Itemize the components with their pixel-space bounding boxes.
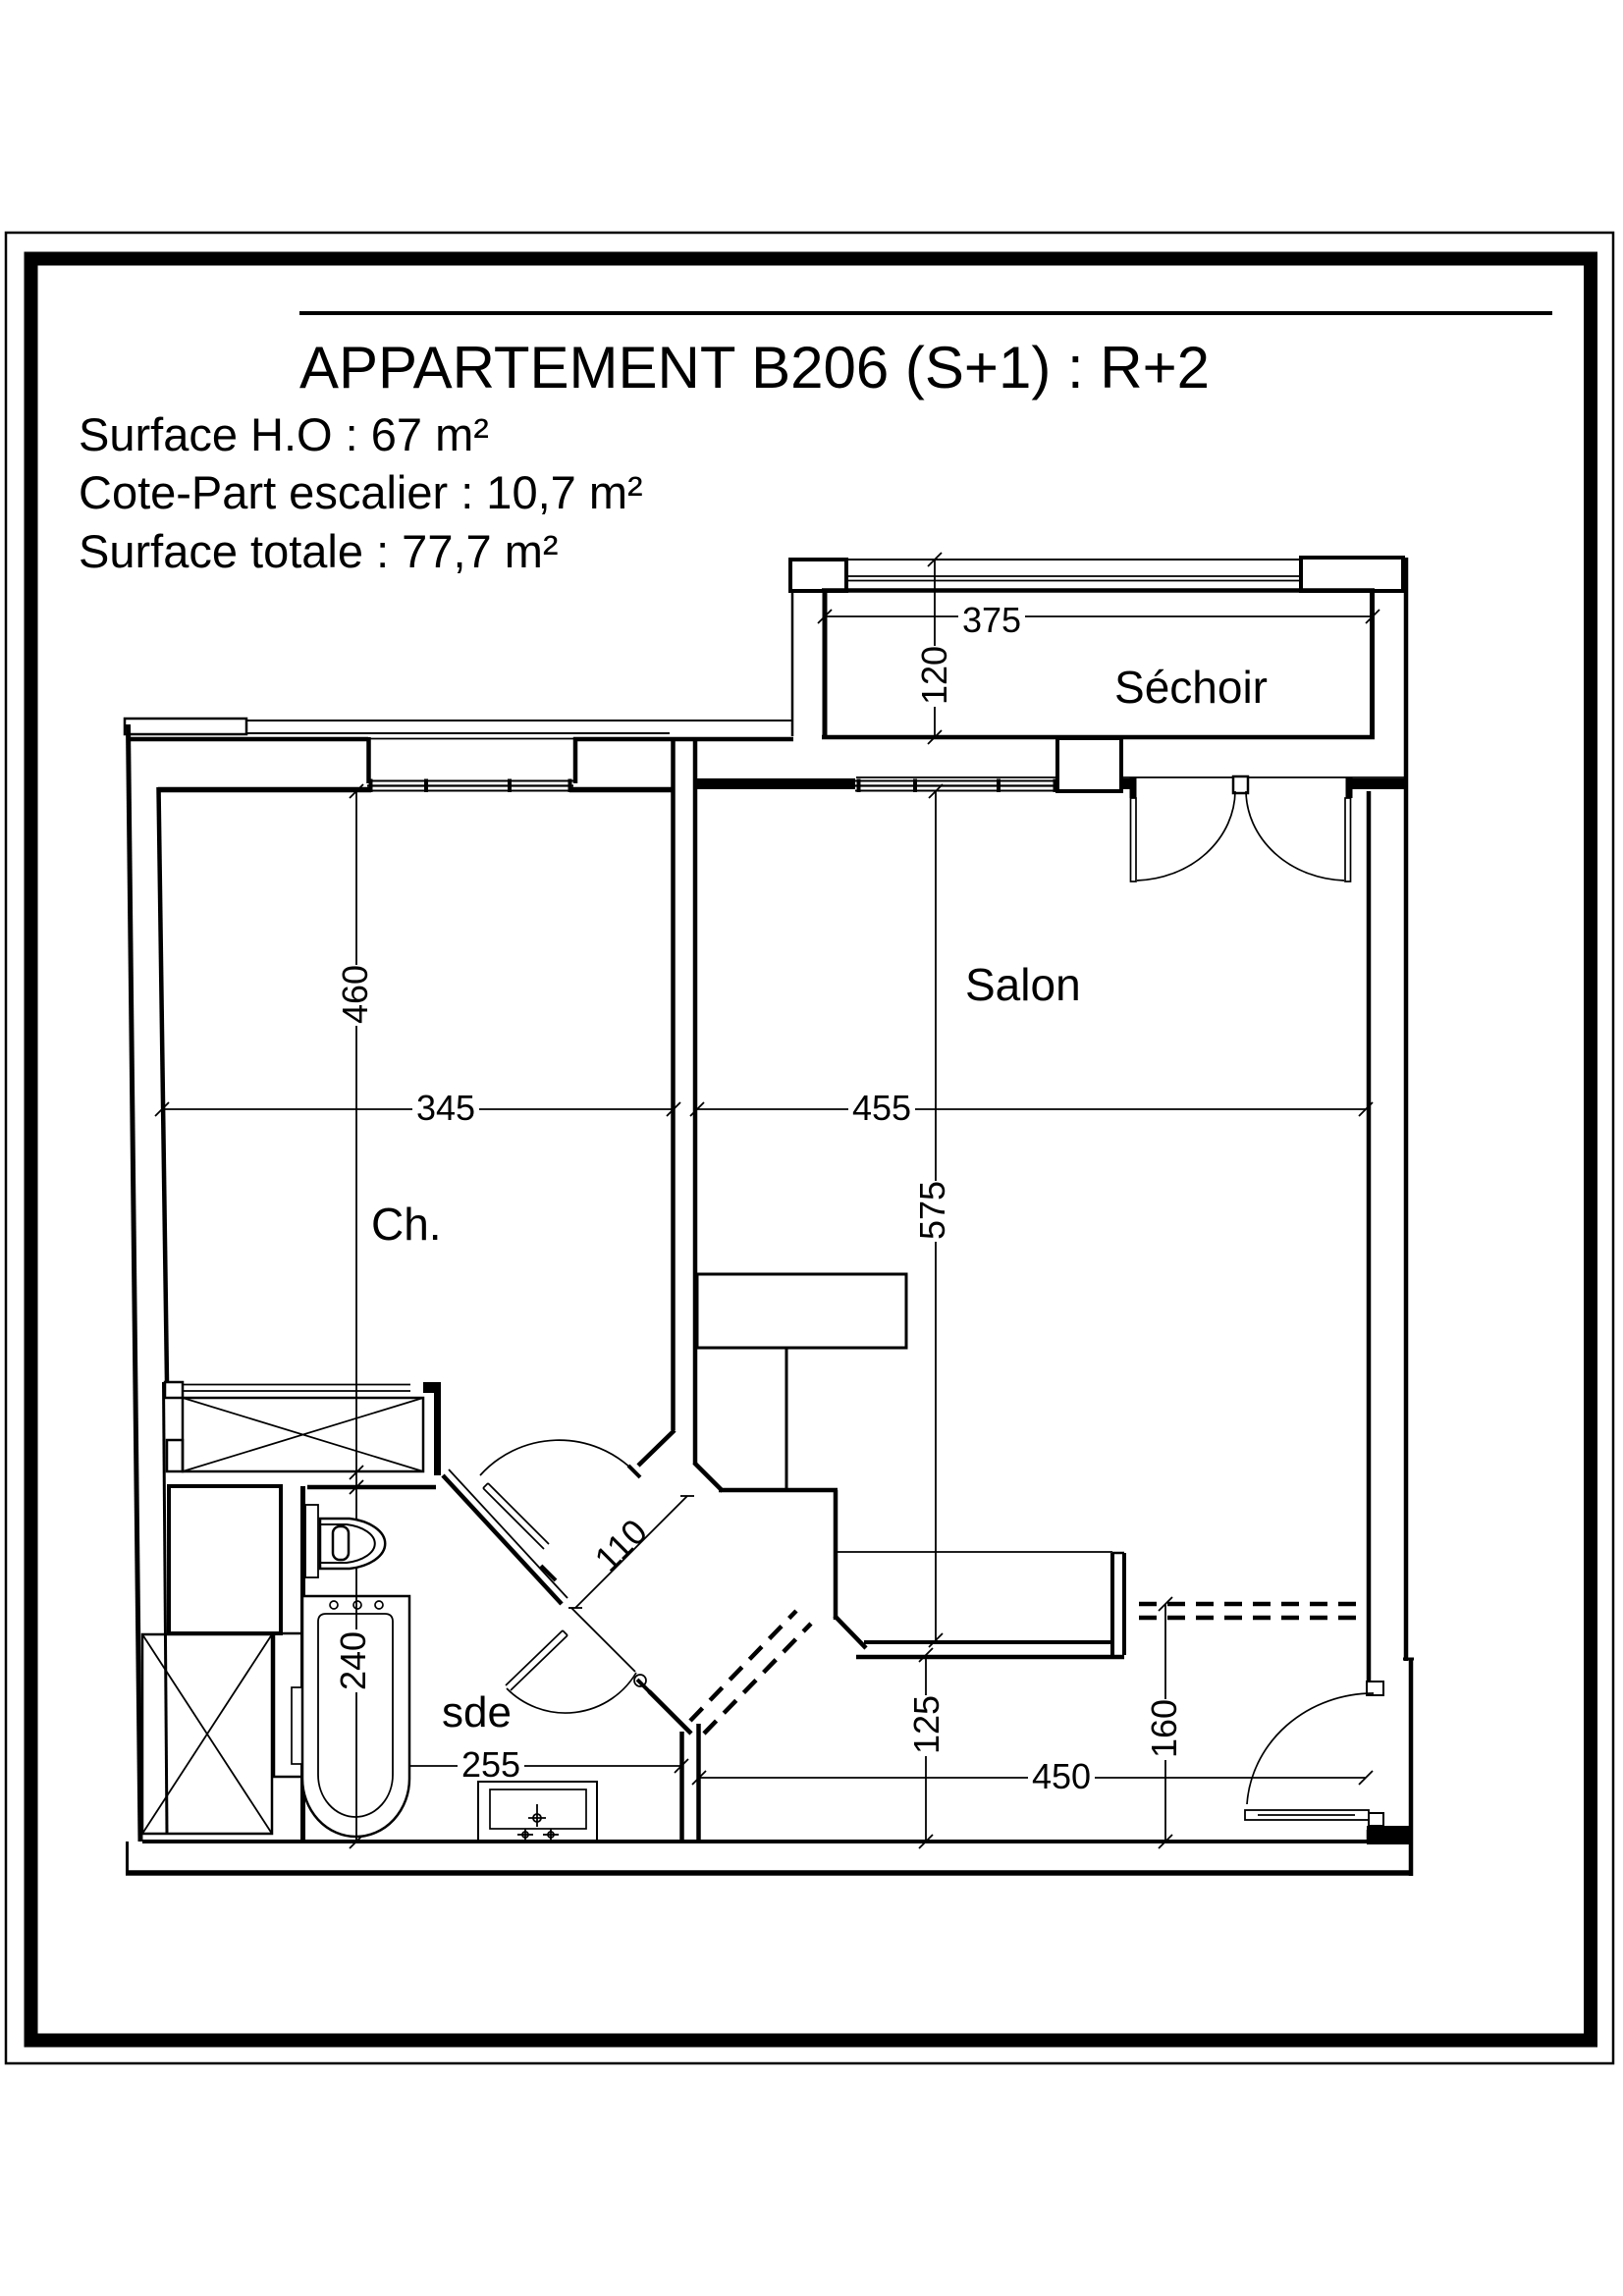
svg-text:Cote-Part escalier : 10,7 m²: Cote-Part escalier : 10,7 m² — [79, 466, 643, 518]
svg-text:125: 125 — [906, 1695, 947, 1754]
svg-text:Surface H.O : 67 m²: Surface H.O : 67 m² — [79, 408, 489, 460]
svg-text:Séchoir: Séchoir — [1114, 662, 1268, 713]
svg-text:345: 345 — [416, 1088, 475, 1128]
svg-text:240: 240 — [333, 1631, 373, 1690]
svg-text:120: 120 — [914, 646, 954, 705]
svg-text:Surface totale : 77,7 m²: Surface totale : 77,7 m² — [79, 525, 559, 577]
svg-text:455: 455 — [852, 1088, 911, 1128]
svg-text:255: 255 — [461, 1744, 520, 1785]
svg-text:sde: sde — [442, 1688, 512, 1736]
svg-text:375: 375 — [962, 600, 1021, 640]
svg-text:460: 460 — [335, 965, 375, 1024]
svg-text:450: 450 — [1032, 1756, 1091, 1796]
svg-text:APPARTEMENT B206 (S+1) : R+2: APPARTEMENT B206 (S+1) : R+2 — [299, 335, 1210, 400]
svg-text:Ch.: Ch. — [371, 1199, 442, 1250]
svg-text:Salon: Salon — [965, 959, 1081, 1010]
svg-text:575: 575 — [912, 1181, 952, 1240]
svg-text:160: 160 — [1144, 1699, 1184, 1758]
